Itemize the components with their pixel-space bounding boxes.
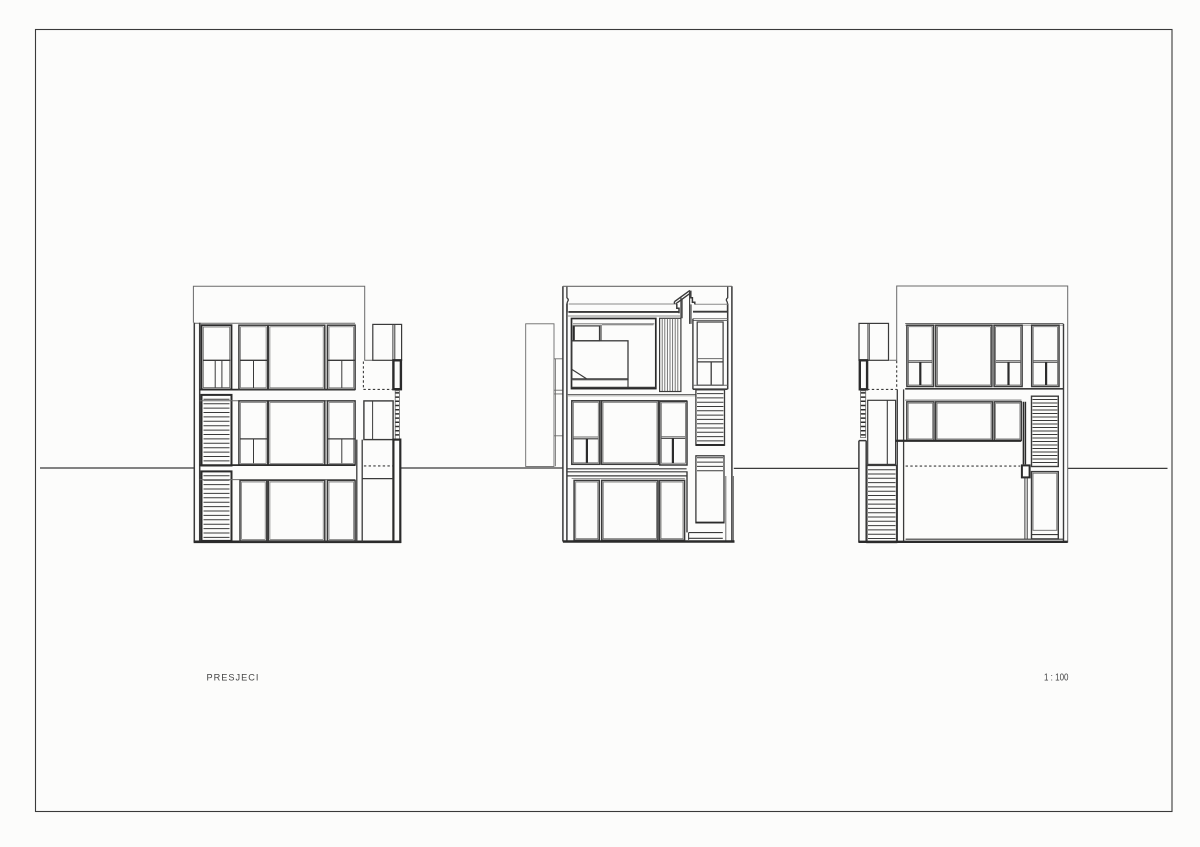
svg-text:1 : 100: 1 : 100 xyxy=(1044,672,1069,683)
svg-text:PRESJECI: PRESJECI xyxy=(207,673,260,683)
